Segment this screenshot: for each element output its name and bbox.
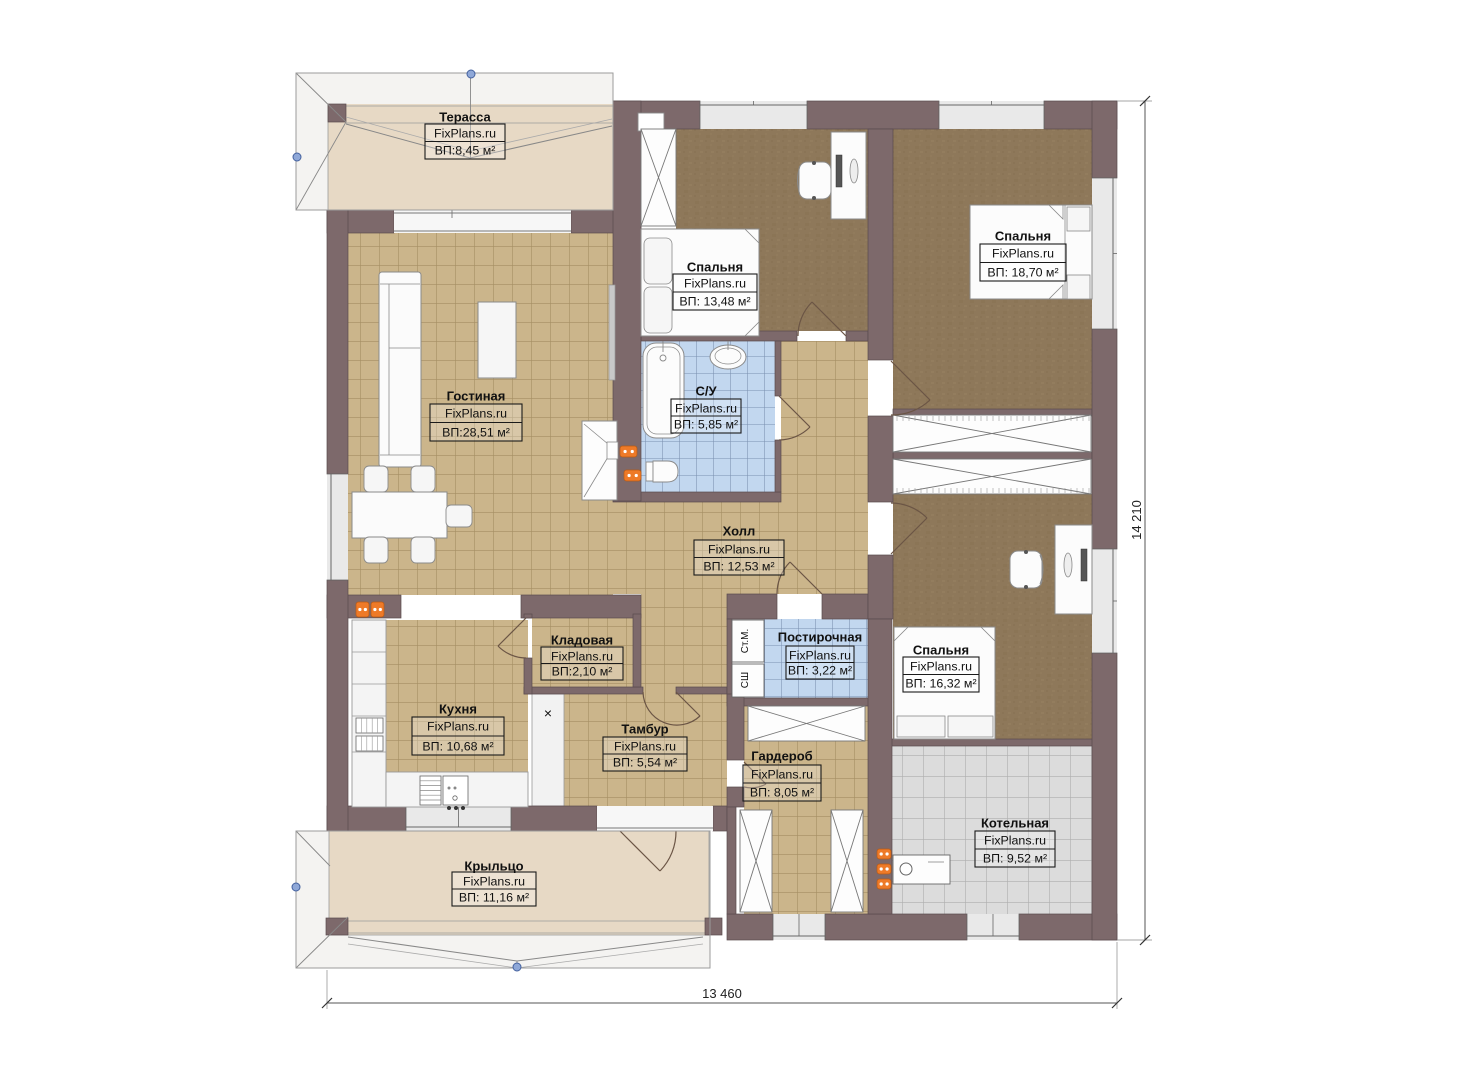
svg-text:ВП: 8,05 м²: ВП: 8,05 м²: [750, 786, 814, 800]
svg-text:FixPlans.ru: FixPlans.ru: [551, 650, 613, 664]
svg-text:ВП: 12,53 м²: ВП: 12,53 м²: [703, 560, 774, 574]
svg-text:FixPlans.ru: FixPlans.ru: [434, 127, 496, 141]
svg-text:FixPlans.ru: FixPlans.ru: [445, 407, 507, 421]
svg-text:FixPlans.ru: FixPlans.ru: [614, 740, 676, 754]
svg-text:ВП: 3,22 м²: ВП: 3,22 м²: [788, 664, 852, 678]
svg-text:ВП: 5,85 м²: ВП: 5,85 м²: [674, 418, 738, 432]
svg-text:Гостиная: Гостиная: [447, 389, 506, 404]
svg-text:Спальня: Спальня: [687, 260, 743, 275]
svg-text:ВП: 13,48 м²: ВП: 13,48 м²: [679, 295, 750, 309]
svg-text:Кладовая: Кладовая: [551, 633, 613, 648]
svg-text:Спальня: Спальня: [913, 643, 969, 658]
svg-text:Тамбур: Тамбур: [621, 722, 668, 737]
svg-text:ВП: 10,68 м²: ВП: 10,68 м²: [422, 740, 493, 754]
svg-text:FixPlans.ru: FixPlans.ru: [751, 768, 813, 782]
svg-text:ВП:8,45 м²: ВП:8,45 м²: [435, 144, 496, 158]
svg-text:Терасса: Терасса: [439, 110, 491, 125]
svg-text:FixPlans.ru: FixPlans.ru: [789, 649, 851, 663]
svg-text:13 460: 13 460: [702, 986, 742, 1001]
svg-text:FixPlans.ru: FixPlans.ru: [427, 720, 489, 734]
svg-text:Крыльцо: Крыльцо: [464, 859, 523, 874]
svg-text:Гардероб: Гардероб: [751, 749, 812, 764]
svg-text:ВП: 11,16 м²: ВП: 11,16 м²: [459, 891, 529, 905]
svg-text:ВП: 9,52 м²: ВП: 9,52 м²: [983, 852, 1047, 866]
svg-text:FixPlans.ru: FixPlans.ru: [675, 402, 737, 416]
svg-text:FixPlans.ru: FixPlans.ru: [984, 834, 1046, 848]
svg-text:Котельная: Котельная: [981, 816, 1049, 831]
svg-text:14 210: 14 210: [1129, 500, 1144, 540]
svg-text:С/У: С/У: [695, 384, 717, 399]
svg-text:Спальня: Спальня: [995, 229, 1051, 244]
svg-text:FixPlans.ru: FixPlans.ru: [463, 875, 525, 889]
svg-text:ВП:28,51 м²: ВП:28,51 м²: [442, 426, 510, 440]
svg-text:СШ: СШ: [740, 672, 751, 688]
svg-text:ВП: 16,32 м²: ВП: 16,32 м²: [905, 677, 976, 691]
svg-text:FixPlans.ru: FixPlans.ru: [992, 247, 1054, 261]
svg-text:ВП: 5,54 м²: ВП: 5,54 м²: [613, 756, 677, 770]
svg-text:FixPlans.ru: FixPlans.ru: [708, 543, 770, 557]
svg-text:Холл: Холл: [723, 524, 756, 539]
svg-text:Постирочная: Постирочная: [778, 630, 862, 645]
svg-text:ВП: 18,70 м²: ВП: 18,70 м²: [987, 266, 1058, 280]
svg-text:FixPlans.ru: FixPlans.ru: [684, 277, 746, 291]
svg-text:ВП:2,10 м²: ВП:2,10 м²: [552, 665, 613, 679]
svg-text:FixPlans.ru: FixPlans.ru: [910, 660, 972, 674]
svg-text:Кухня: Кухня: [439, 702, 477, 717]
svg-text:×: ×: [544, 705, 552, 721]
svg-text:Ст.М.: Ст.М.: [740, 629, 751, 654]
